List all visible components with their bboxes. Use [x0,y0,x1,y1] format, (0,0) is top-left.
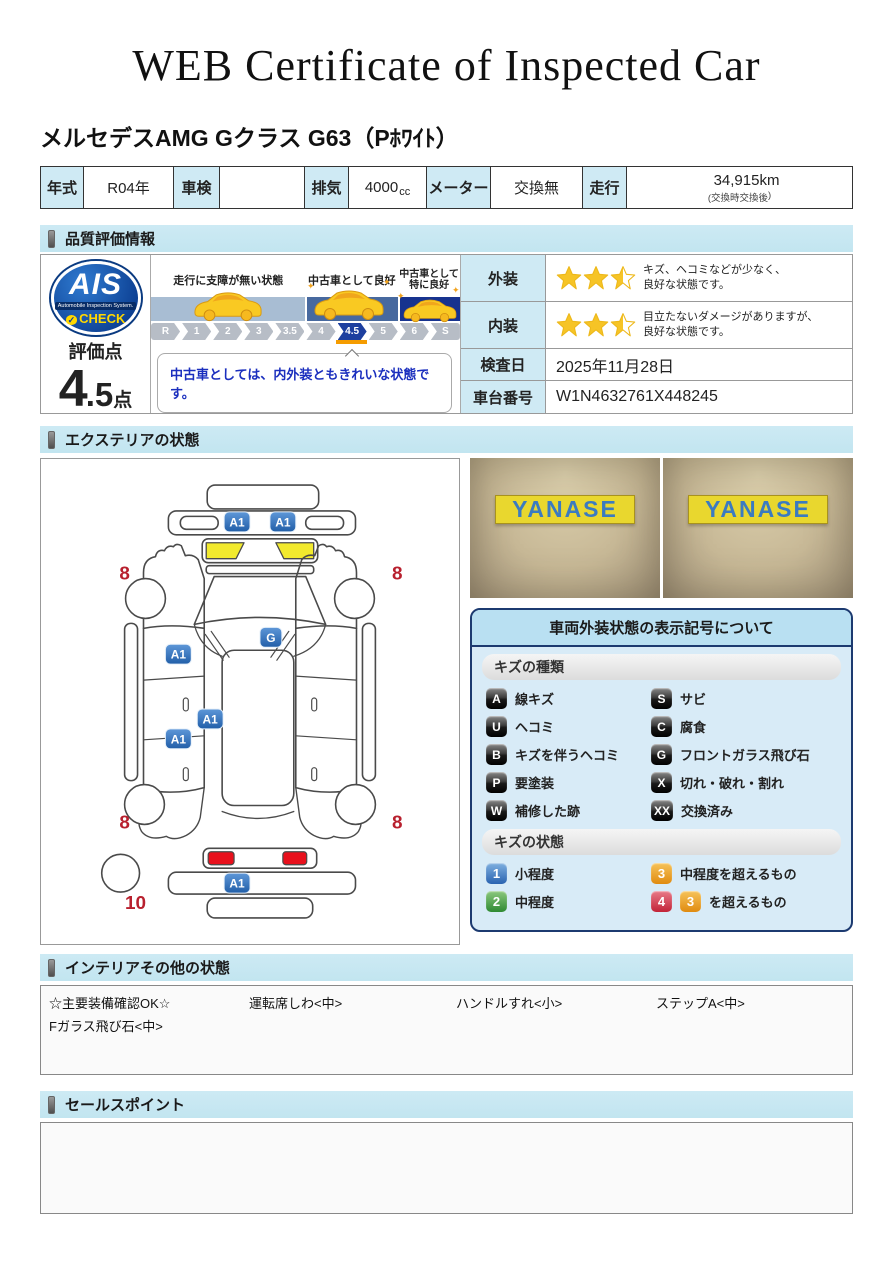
ais-logo-subtitle: Automobile Inspection System. [55,302,137,310]
interior-rating-label: 内装 [461,302,546,348]
table-row: 検査日 2025年11月28日 [461,349,852,381]
symbol-badge: X [651,772,672,793]
interior-note: ステップA<中> [656,993,844,1012]
table-row: 外装 キズ、ヘコミなどが少なく、 良好な状態です。 [461,255,852,302]
section-header-interior: インテリアその他の状態 [40,954,853,981]
legend-kind-header: キズの種類 [482,654,841,680]
symbol-badge: A [486,688,507,709]
certificate-page: WEB Certificate of Inspected Car メルセデスAM… [0,0,893,1263]
score-value: 4.5点 [59,366,132,413]
interior-note: 運転席しわ<中> [249,993,456,1012]
vehicle-name: メルセデスAMG Gクラス G63（Pﾎﾜｲﾄ） [40,119,853,153]
section-title: セールスポイント [65,1094,185,1115]
section-bar-icon [48,230,55,248]
legend-item: 2中程度 [486,891,651,912]
symbol-legend-panel: 車両外装状態の表示記号について キズの種類 A線キズSサビUヘコミC腐食Bキズを… [470,608,853,932]
vehicle-info-table: 年式 R04年 車検 排気 4000cc メーター 交換無 走行 34,915k… [40,166,853,209]
legend-item: Uヘコミ [486,716,651,737]
mileage-note-open: (交換時 [708,190,740,204]
star-icon [583,312,609,338]
state-badge: 2 [486,891,507,912]
displacement-label: 排気 [305,166,349,209]
rating-text-line: キズ、ヘコミなどが少なく、 [643,264,786,276]
symbol-badge: W [486,800,507,821]
damage-marker-label: A1 [203,712,219,726]
shaken-value [220,166,305,209]
star-icon [583,265,609,291]
quality-panel: AIS Automobile Inspection System. CHECK … [40,254,853,414]
section-header-exterior: エクステリアの状態 [40,426,853,453]
interior-row: ☆主要装備確認OK☆運転席しわ<中>ハンドルすれ<小>ステップA<中> [49,993,844,1012]
legend-item-label: ヘコミ [515,717,554,736]
legend-item: C腐食 [651,716,837,737]
state-badge: 4 [651,891,672,912]
legend-title: 車両外装状態の表示記号について [472,610,851,647]
rating-text: 目立たないダメージがありますが、 良好な状態です。 [643,310,818,341]
damage-marker-label: A1 [171,732,187,746]
yanase-sign: YANASE [495,495,636,524]
state-badge: 3 [680,891,701,912]
star-rating [556,265,637,291]
star-icon [556,265,582,291]
scale-tick: R [151,323,180,340]
scale-tick: 3 [244,323,273,340]
exterior-photo: YANASE [663,458,853,598]
score-unit: 点 [113,390,132,411]
score-decimal: .5 [86,376,114,413]
legend-item-label: 中程度を超えるもの [680,864,797,883]
legend-item-label: 補修した跡 [515,801,580,820]
legend-item-label: キズを伴うヘコミ [515,745,619,764]
state-badge: 1 [486,863,507,884]
symbol-badge: XX [651,800,673,821]
scale-zone-label: 中古車として 特に良好 [398,263,460,297]
state-badge: 3 [651,863,672,884]
table-row: 内装 目立たないダメージがありますが、 良好な状態です。 [461,302,852,349]
legend-item: 1小程度 [486,863,651,884]
car-icon [401,297,459,323]
table-row: 車台番号 W1N4632761X448245 [461,381,852,413]
ais-check-label: CHECK [66,311,126,326]
symbol-badge: P [486,772,507,793]
mileage-label: 走行 [583,166,627,209]
sparkle-icon: ✦ [307,281,315,292]
rating-text-line: 良好な状態です。 [643,326,730,338]
displacement-value: 4000cc [349,166,427,209]
scale-tick: S [431,323,460,340]
exterior-photos: YANASEYANASE [470,458,853,598]
symbol-badge: B [486,744,507,765]
legend-item: X切れ・破れ・割れ [651,772,837,793]
section-title: 品質評価情報 [65,228,155,249]
interior-rating-value: 目立たないダメージがありますが、 良好な状態です。 [546,302,852,348]
rating-scale-area: 走行に支障が無い状態中古車として良好中古車として 特に良好 ✦ ✦ ✦ ✦ R1… [151,255,461,413]
scale-tick: 6 [400,323,429,340]
star-icon [556,312,582,338]
mileage-note-mid: 交換後 [739,190,768,204]
legend-item: 3中程度を超えるもの [651,863,837,884]
mileage-note-close: ) [768,190,771,204]
scale-tick: 1 [182,323,211,340]
rating-text-line: 良好な状態です。 [643,279,730,291]
rating-table: 外装 キズ、ヘコミなどが少なく、 良好な状態です。 内装 目立たないダメージがあ… [461,255,852,413]
ais-logo: AIS Automobile Inspection System. CHECK [51,261,141,335]
scale-tick: 4 [306,323,335,340]
exterior-rating-value: キズ、ヘコミなどが少なく、 良好な状態です。 [546,255,852,301]
damage-count-number: 8 [119,812,130,833]
damage-diagram-box: 888810 A1A1GA1A1A1A1 [40,458,460,945]
damage-count-number: 8 [392,812,403,833]
chassis-number-label: 車台番号 [461,381,546,413]
legend-state-header: キズの状態 [482,829,841,855]
year-label: 年式 [40,166,84,209]
damage-marker-label: A1 [229,877,245,891]
interior-notes-box: ☆主要装備確認OK☆運転席しわ<中>ハンドルすれ<小>ステップA<中> Fガラス… [40,985,853,1075]
symbol-badge: C [651,716,672,737]
interior-note: Fガラス飛び石<中> [49,1019,163,1034]
legend-item: W補修した跡 [486,800,651,821]
interior-note: ハンドルすれ<小> [456,993,656,1012]
displacement-number: 4000 [365,179,398,196]
legend-item: Sサビ [651,688,837,709]
legend-item: Bキズを伴うヘコミ [486,744,651,765]
section-bar-icon [48,959,55,977]
legend-item: P要塗装 [486,772,651,793]
car-icon [311,287,387,321]
legend-item-label: 中程度 [515,892,554,911]
mileage-number: 34,915km [700,172,780,189]
scale-tick: 5 [369,323,398,340]
rating-text: キズ、ヘコミなどが少なく、 良好な状態です。 [643,263,786,294]
car-damage-diagram: 888810 A1A1GA1A1A1A1 [41,459,459,944]
scale-tick: 3.5 [275,323,304,340]
section-title: インテリアその他の状態 [65,957,230,978]
damage-count-number: 8 [119,564,130,585]
section-title: エクステリアの状態 [65,429,200,450]
legend-item-label: フロントガラス飛び石 [680,745,810,764]
page-title: WEB Certificate of Inspected Car [0,40,893,91]
sparkle-icon: ✦ [383,277,391,288]
section-header-quality: 品質評価情報 [40,225,853,252]
chassis-number-value: W1N4632761X448245 [546,381,852,413]
ais-score-column: AIS Automobile Inspection System. CHECK … [41,255,151,413]
ais-logo-text: AIS [69,270,122,300]
damage-marker-label: G [266,631,275,645]
legend-item-label: 線キズ [515,689,554,708]
inspection-date-value: 2025年11月28日 [546,349,852,380]
symbol-badge: U [486,716,507,737]
exterior-rating-label: 外装 [461,255,546,301]
symbol-badge: S [651,688,672,709]
scale-tick: 4.5 [338,323,367,340]
legend-body: キズの種類 A線キズSサビUヘコミC腐食Bキズを伴うヘコミGフロントガラス飛び石… [472,647,851,930]
legend-item-label: 要塗装 [515,773,554,792]
legend-item: XX交換済み [651,800,837,821]
damage-count-number: 10 [125,893,146,914]
sales-point-box [40,1122,853,1214]
meter-label: メーター [427,166,491,209]
yanase-sign: YANASE [688,495,829,524]
section-bar-icon [48,1096,55,1114]
interior-row: Fガラス飛び石<中> [49,1016,844,1035]
legend-item-label: 交換済み [681,801,733,820]
meter-value: 交換無 [491,166,583,209]
exterior-content: 888810 A1A1GA1A1A1A1 YANASEYANASE 車両外装状態… [40,458,853,945]
legend-item: 43を超えるもの [651,891,837,912]
inspection-date-label: 検査日 [461,349,546,380]
rating-text-line: 目立たないダメージがありますが、 [643,311,818,323]
zone-separator [305,263,307,321]
section-bar-icon [48,431,55,449]
damage-marker-label: A1 [171,648,187,662]
legend-item: A線キズ [486,688,651,709]
legend-kinds: A線キズSサビUヘコミC腐食Bキズを伴うヘコミGフロントガラス飛び石P要塗装X切… [482,686,841,829]
legend-item-label: 小程度 [515,864,554,883]
damage-marker-label: A1 [229,515,245,529]
score-comment-bubble: 中古車としては、内外装ともきれいな状態です。 [157,353,452,413]
scale-ticks: R1233.544.556S [151,323,460,340]
shaken-label: 車検 [174,166,220,209]
section-header-sales: セールスポイント [40,1091,853,1118]
star-rating [556,312,637,338]
score-integer: 4 [59,360,86,418]
legend-item-label: サビ [680,689,706,708]
legend-item: Gフロントガラス飛び石 [651,744,837,765]
legend-item-label: 切れ・破れ・割れ [680,773,784,792]
scale-tick: 2 [213,323,242,340]
displacement-unit: cc [399,186,410,198]
active-score-indicator [336,340,367,344]
legend-item-label: を超えるもの [709,892,787,911]
legend-item-label: 腐食 [680,717,706,736]
mileage-note: (交換時 交換後 ) [708,190,771,204]
symbol-badge: G [651,744,672,765]
damage-count-number: 8 [392,564,403,585]
exterior-right-column: YANASEYANASE 車両外装状態の表示記号について キズの種類 A線キズS… [470,458,853,945]
year-value: R04年 [84,166,174,209]
star-icon [610,312,636,338]
mileage-value: 34,915km (交換時 交換後 ) [627,166,853,209]
sparkle-icon: ✦ [452,285,460,296]
interior-note: ☆主要装備確認OK☆ [49,993,249,1012]
damage-marker-label: A1 [275,515,291,529]
car-icon [191,289,265,322]
legend-states: 1小程度3中程度を超えるもの2中程度43を超えるもの [482,861,841,920]
star-icon [610,265,636,291]
sparkle-icon: ✦ [397,291,405,302]
exterior-photo: YANASE [470,458,660,598]
